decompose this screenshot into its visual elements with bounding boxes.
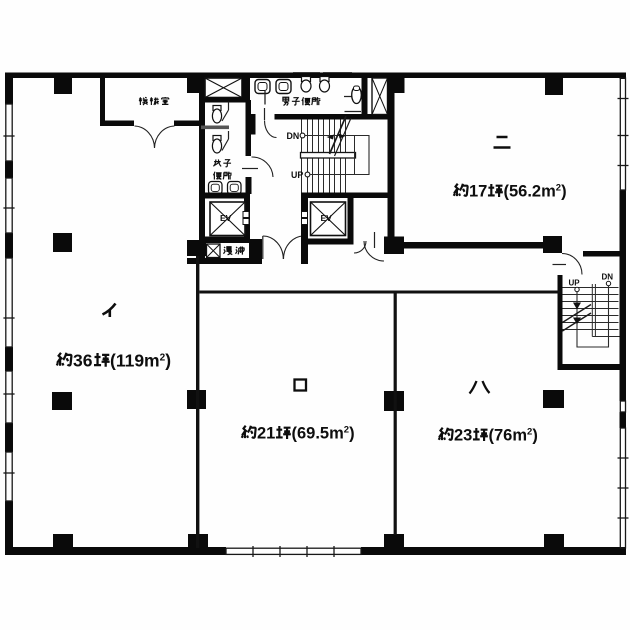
svg-text:36: 36	[73, 351, 93, 371]
svg-text:17: 17	[469, 183, 487, 201]
svg-text:23: 23	[454, 427, 472, 445]
svg-text:EV: EV	[220, 213, 232, 223]
svg-text:DN: DN	[602, 273, 614, 282]
svg-text:UP: UP	[291, 170, 303, 180]
svg-text:DN: DN	[287, 131, 300, 141]
svg-text:21: 21	[257, 425, 275, 443]
svg-text:UP: UP	[569, 279, 581, 288]
svg-text:EV: EV	[321, 213, 333, 223]
